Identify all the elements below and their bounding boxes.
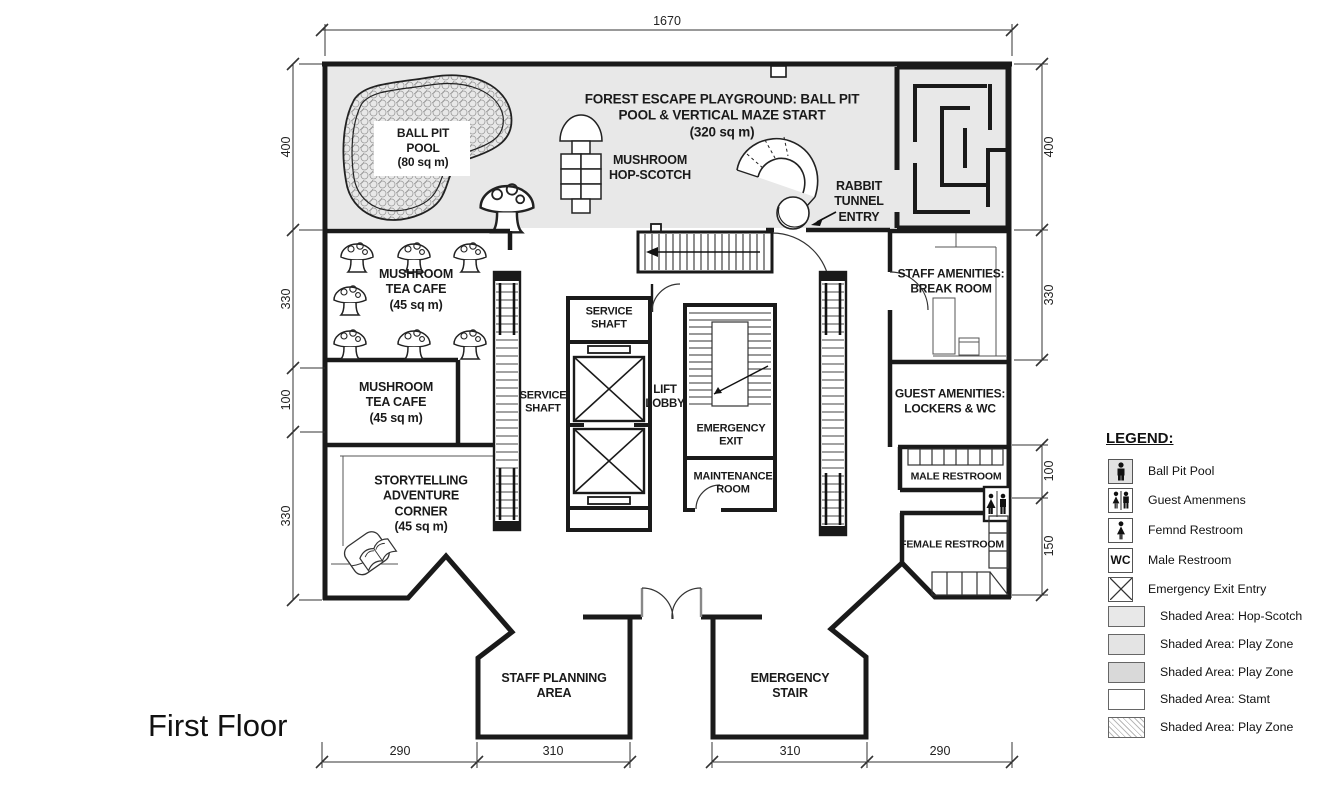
dim-right-100: 100 <box>1042 461 1056 482</box>
legend-item-label: Shaded Area: Play Zone <box>1160 720 1293 734</box>
dim-bottom-290b: 290 <box>930 744 951 758</box>
male-figure-icon <box>1108 459 1133 484</box>
shaded-swatch-icon <box>1108 606 1145 627</box>
legend-item: Shaded Area: Play Zone <box>1108 714 1293 740</box>
page-title: First Floor <box>148 708 288 744</box>
room-label-emergency-exit: EMERGENCY EXIT <box>696 423 765 450</box>
room-label-hop-scotch: MUSHROOM HOP-SCOTCH <box>609 153 691 184</box>
legend-item-label: Shaded Area: Stamt <box>1160 692 1270 706</box>
legend-item-label: Shaded Area: Hop-Scotch <box>1160 609 1302 623</box>
dim-bottom-310a: 310 <box>543 744 564 758</box>
dim-right-150: 150 <box>1042 536 1056 557</box>
legend-item: Shaded Area: Stamt <box>1108 686 1270 712</box>
legend-item: Guest Amenmens <box>1108 487 1246 513</box>
legend-item-label: Shaded Area: Play Zone <box>1160 665 1293 679</box>
dim-left-400: 400 <box>279 137 293 158</box>
male-female-figures-icon <box>1108 488 1133 513</box>
legend-item: Femnd Restroom <box>1108 517 1243 543</box>
room-label-staff-planning: STAFF PLANNING AREA <box>501 671 606 702</box>
legend-item: Ball Pit Pool <box>1108 458 1214 484</box>
room-label-emergency-stair: EMERGENCY STAIR <box>751 671 830 702</box>
double-door <box>630 588 713 619</box>
room-label-male-restroom: MALE RESTROOM <box>911 471 1002 484</box>
dim-bottom-290a: 290 <box>390 744 411 758</box>
room-label-lift-lobby: LIFT LOBBY <box>645 383 684 411</box>
room-label-maintenance-room: MAINTENANCE ROOM <box>693 471 772 498</box>
legend-item: Emergency Exit Entry <box>1108 576 1266 602</box>
lift-lobby-door <box>652 284 680 312</box>
legend-item: Shaded Area: Play Zone <box>1108 659 1293 685</box>
legend-item: Shaded Area: Hop-Scotch <box>1108 603 1302 629</box>
legend-item-label: Ball Pit Pool <box>1148 464 1214 478</box>
female-restroom-stalls <box>932 516 1008 595</box>
dim-top-1670: 1670 <box>653 14 681 28</box>
room-label-cafe-upper: MUSHROOM TEA CAFE (45 sq m) <box>379 267 453 313</box>
dim-bottom-310b: 310 <box>780 744 801 758</box>
hatched-swatch-icon <box>1108 717 1145 738</box>
female-figure-icon <box>1108 518 1133 543</box>
room-label-service-shaft-lift: SERVICE SHAFT <box>586 306 633 333</box>
dim-right-330: 330 <box>1042 285 1056 306</box>
room-label-cafe-lower: MUSHROOM TEA CAFE (45 sq m) <box>359 380 433 426</box>
legend-item-label: Shaded Area: Play Zone <box>1160 637 1293 651</box>
legend-item: WC Male Restroom <box>1108 547 1231 573</box>
dim-left-100: 100 <box>279 390 293 411</box>
crossed-box-icon <box>1108 577 1133 602</box>
dim-left-330a: 330 <box>279 289 293 310</box>
shaded-swatch-icon <box>1108 662 1145 683</box>
room-label-staff-amenities: STAFF AMENITIES: BREAK ROOM <box>898 266 1005 295</box>
room-label-playground: FOREST ESCAPE PLAYGROUND: BALL PIT POOL … <box>585 91 859 140</box>
room-label-ball-pit-pool: BALL PIT POOL (80 sq m) <box>397 126 449 170</box>
shaded-swatch-icon <box>1108 634 1145 655</box>
legend-item-label: Male Restroom <box>1148 553 1231 567</box>
legend-item-label: Femnd Restroom <box>1148 523 1243 537</box>
room-label-storytelling: STORYTELLING ADVENTURE CORNER (45 sq m) <box>374 474 467 535</box>
escalator-right <box>820 272 846 535</box>
legend-item: Shaded Area: Play Zone <box>1108 631 1293 657</box>
vertical-maze <box>897 67 1008 228</box>
legend-item-label: Emergency Exit Entry <box>1148 582 1266 596</box>
legend-item-label: Guest Amenmens <box>1148 493 1246 507</box>
staircase-top <box>638 224 772 272</box>
room-label-rabbit-tunnel: RABBIT TUNNEL ENTRY <box>834 179 884 225</box>
dim-right-400: 400 <box>1042 137 1056 158</box>
escalator-left <box>494 272 520 530</box>
dim-left-330b: 330 <box>279 506 293 527</box>
room-label-guest-amenities: GUEST AMENITIES: LOCKERS & WC <box>895 386 1005 415</box>
legend-title: LEGEND: <box>1106 430 1174 447</box>
room-label-service-shaft-escalator: SERVICE SHAFT <box>520 390 567 417</box>
lift-shaft-block <box>568 298 650 530</box>
floor-plan-canvas: FOREST ESCAPE PLAYGROUND: BALL PIT POOL … <box>0 0 1318 800</box>
room-label-female-restroom: FEMALE RESTROOM <box>900 539 1004 552</box>
wc-icon: WC <box>1108 548 1133 573</box>
shaded-swatch-icon <box>1108 689 1145 710</box>
male-restroom-lockers <box>908 449 1003 465</box>
